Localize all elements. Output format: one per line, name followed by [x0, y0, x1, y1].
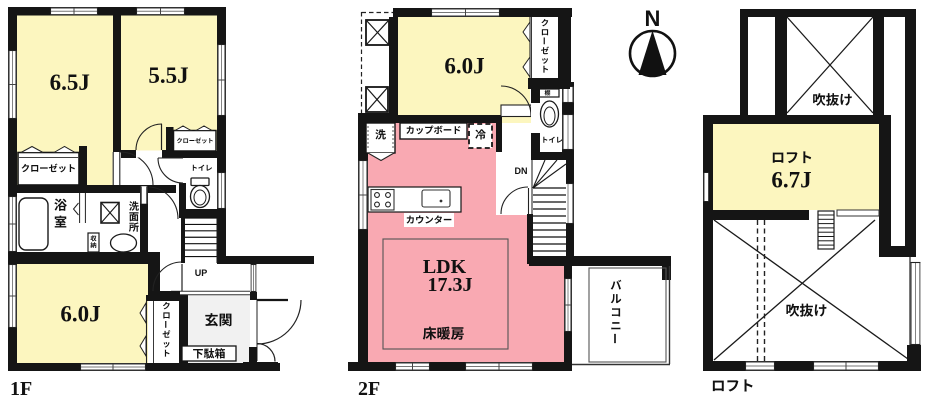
svg-text:6.0J: 6.0J — [444, 54, 484, 79]
svg-text:1F: 1F — [10, 378, 32, 400]
svg-text:UP: UP — [195, 268, 208, 278]
svg-text:6.5J: 6.5J — [50, 70, 90, 95]
svg-text:6.0J: 6.0J — [60, 302, 100, 327]
svg-text:6.7J: 6.7J — [771, 168, 811, 193]
svg-text:2F: 2F — [358, 378, 380, 400]
svg-text:17.3J: 17.3J — [428, 274, 473, 296]
svg-text:DN: DN — [515, 166, 528, 176]
svg-text:N: N — [645, 6, 661, 31]
svg-text:5.5J: 5.5J — [148, 63, 188, 88]
